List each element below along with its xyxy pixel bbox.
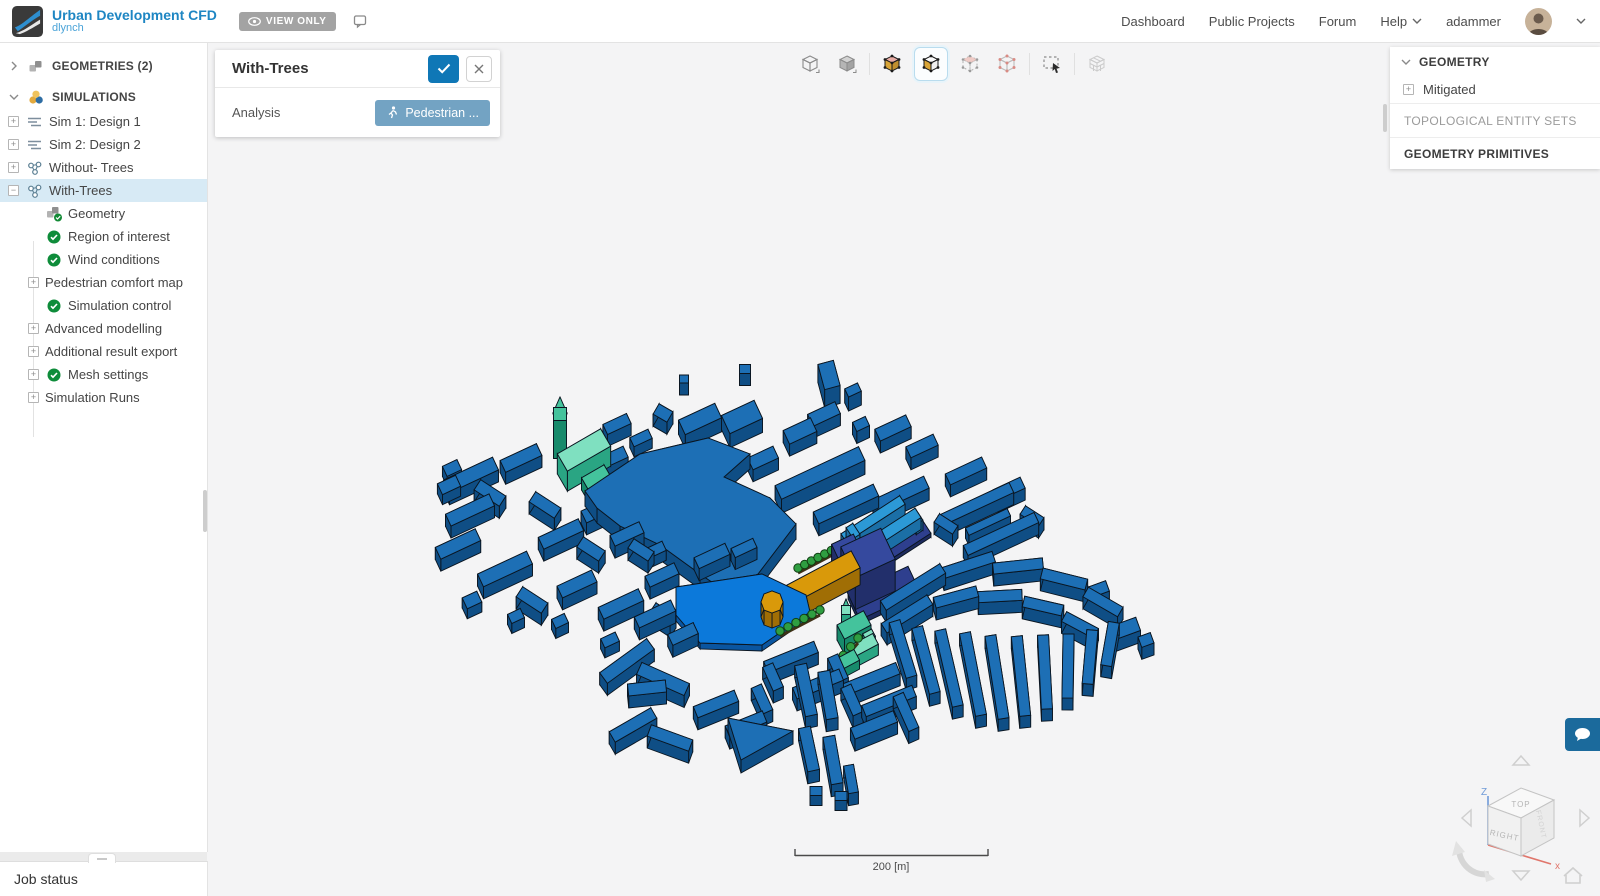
shaded-view-button[interactable] — [914, 47, 948, 81]
mesh-cube-icon — [1086, 53, 1108, 75]
navigation-cube[interactable]: Z x TOP RIGHT FRONT — [1452, 756, 1589, 883]
nav-forum[interactable]: Forum — [1319, 14, 1357, 29]
topological-entity-sets-label: TOPOLOGICAL ENTITY SETS — [1404, 114, 1577, 128]
scale-bar-label: 200 [m] — [873, 861, 910, 873]
sidebar-item-region-of-interest[interactable]: Region of interest — [0, 225, 207, 248]
geometry-section-row[interactable]: GEOMETRY — [1390, 47, 1600, 76]
wireframe-view-button[interactable] — [795, 49, 825, 79]
avatar-image — [1525, 8, 1552, 35]
expander-plus-icon[interactable]: + — [8, 139, 19, 150]
expander-minus-icon[interactable]: − — [8, 185, 19, 196]
expander-plus-icon[interactable]: + — [28, 369, 39, 380]
solid-view-button[interactable] — [832, 49, 862, 79]
sidebar-item-label: Pedestrian comfort map — [45, 275, 183, 290]
network-icon — [27, 184, 42, 198]
sidebar-item-label: Without- Trees — [49, 160, 134, 175]
vertex-cube-icon — [959, 53, 981, 75]
x-axis-label: x — [1555, 861, 1560, 872]
expander-plus-icon[interactable]: + — [28, 323, 39, 334]
shaded-edges-view-button[interactable] — [877, 49, 907, 79]
mesh-view-button[interactable] — [1082, 49, 1112, 79]
project-brand[interactable]: Urban Development CFD dlynch — [52, 8, 217, 34]
cube-top-label: TOP — [1511, 800, 1530, 809]
topological-entity-sets-row[interactable]: TOPOLOGICAL ENTITY SETS — [1390, 103, 1600, 137]
sidebar-item-label: Simulation Runs — [45, 390, 140, 405]
mitigated-row[interactable]: + Mitigated — [1390, 76, 1600, 103]
box-select-icon — [1041, 53, 1063, 75]
roll-arrow-head2 — [1484, 870, 1495, 882]
rotate-up-arrow[interactable] — [1513, 756, 1529, 765]
sidebar-item-without-trees[interactable]: + Without- Trees — [0, 156, 207, 179]
sidebar-item-label: GEOMETRIES (2) — [52, 59, 153, 73]
solid-cube-icon — [836, 53, 858, 75]
settings-panel-title: With-Trees — [232, 60, 428, 77]
home-view-icon[interactable] — [1564, 868, 1582, 883]
nav-help-menu[interactable]: Help — [1380, 14, 1422, 29]
chevron-right-icon[interactable] — [9, 61, 19, 71]
view-only-label: VIEW ONLY — [266, 16, 327, 27]
roll-arrow-head — [1452, 841, 1465, 856]
viewport-toolbar — [795, 47, 1112, 81]
header-nav: Dashboard Public Projects Forum Help ada… — [1121, 8, 1600, 35]
scene-tree-panel: GEOMETRY + Mitigated TOPOLOGICAL ENTITY … — [1390, 47, 1600, 169]
wireframe-cube-icon — [799, 53, 821, 75]
rotate-right-arrow[interactable] — [1580, 810, 1589, 826]
nav-help-label: Help — [1380, 14, 1407, 29]
sidebar-item-label: Sim 2: Design 2 — [49, 137, 141, 152]
project-title: Urban Development CFD — [52, 8, 217, 23]
scale-bar — [795, 849, 988, 856]
analysis-type-button[interactable]: Pedestrian ... — [375, 100, 490, 126]
sidebar-item-label: Sim 1: Design 1 — [49, 114, 141, 129]
chevron-down-icon[interactable] — [9, 92, 19, 102]
geometry-primitives-label: GEOMETRY PRIMITIVES — [1404, 147, 1549, 161]
check-circle-icon — [47, 368, 61, 382]
rotate-down-arrow[interactable] — [1513, 871, 1529, 880]
chevron-down-icon[interactable] — [1401, 57, 1411, 67]
sidebar-item-label: Additional result export — [45, 344, 177, 359]
nav-username[interactable]: adammer — [1446, 14, 1501, 29]
z-axis-label: Z — [1481, 787, 1487, 798]
job-status-panel[interactable]: Job status — [0, 861, 208, 896]
check-circle-icon — [47, 230, 61, 244]
geometry-icon — [46, 205, 63, 222]
expander-plus-icon[interactable]: + — [28, 392, 39, 403]
toolbar-divider — [1074, 53, 1075, 75]
simscale-logo[interactable] — [12, 6, 43, 37]
sidebar-item-with-trees[interactable]: − With-Trees — [0, 179, 207, 202]
sidebar-item-geometries[interactable]: GEOMETRIES (2) — [0, 52, 207, 79]
expander-plus-icon[interactable]: + — [1403, 84, 1414, 95]
city-model-scene: 200 [m] Z x — [207, 42, 1600, 895]
sidebar-item-additional-result-export[interactable]: + Additional result export — [0, 340, 207, 363]
expander-plus-icon[interactable]: + — [8, 162, 19, 173]
sidebar-scrollbar[interactable] — [203, 490, 207, 532]
sidebar-item-label: Wind conditions — [68, 252, 160, 267]
shaded-edges-cube-icon — [881, 53, 903, 75]
sidebar-item-advanced-modelling[interactable]: + Advanced modelling — [0, 317, 207, 340]
3d-viewport[interactable]: 200 [m] Z x — [207, 42, 1600, 895]
nav-dashboard[interactable]: Dashboard — [1121, 14, 1185, 29]
geometries-icon — [28, 58, 44, 74]
sidebar-item-pedestrian-comfort-map[interactable]: + Pedestrian comfort map — [0, 271, 207, 294]
eye-icon — [248, 17, 261, 26]
comment-icon[interactable] — [352, 13, 368, 29]
sidebar-item-label: Region of interest — [68, 229, 170, 244]
sidebar-item-simulation-control[interactable]: Simulation control — [0, 294, 207, 317]
primitive-selection-button[interactable] — [992, 49, 1022, 79]
expander-plus-icon[interactable]: + — [8, 116, 19, 127]
check-icon — [437, 63, 451, 74]
geometry-primitives-row[interactable]: GEOMETRY PRIMITIVES — [1390, 137, 1600, 169]
settings-panel-body: Analysis Pedestrian ... — [215, 88, 500, 137]
simulation-icon — [27, 116, 42, 128]
sidebar-item-wind-conditions[interactable]: Wind conditions — [0, 248, 207, 271]
right-panel-scrollbar[interactable] — [1383, 104, 1387, 132]
toolbar-divider — [869, 53, 870, 75]
close-icon — [474, 64, 484, 74]
sidebar-item-simulation-runs[interactable]: + Simulation Runs — [0, 386, 207, 409]
sidebar-item-sim2[interactable]: + Sim 2: Design 2 — [0, 133, 207, 156]
vertex-selection-button[interactable] — [955, 49, 985, 79]
confirm-button[interactable] — [428, 55, 459, 83]
analysis-field-label: Analysis — [232, 105, 375, 120]
with-trees-settings-panel: With-Trees Analysis Pedestrian ... — [215, 50, 500, 137]
simulation-icon — [27, 139, 42, 151]
simulations-icon — [28, 89, 44, 105]
check-circle-icon — [47, 253, 61, 267]
network-icon — [27, 161, 42, 175]
job-status-collapse-handle[interactable] — [88, 853, 116, 863]
shaded-cube-icon — [920, 53, 942, 75]
nav-public-projects[interactable]: Public Projects — [1209, 14, 1295, 29]
chat-bubble-icon — [1574, 727, 1591, 742]
toolbar-divider — [1029, 53, 1030, 75]
chat-button[interactable] — [1565, 718, 1600, 751]
sidebar-item-simulations[interactable]: SIMULATIONS — [0, 83, 207, 110]
sidebar-item-sim1[interactable]: + Sim 1: Design 1 — [0, 110, 207, 133]
primitive-cube-icon — [996, 53, 1018, 75]
avatar[interactable] — [1525, 8, 1552, 35]
project-owner: dlynch — [52, 23, 217, 35]
mitigated-label: Mitigated — [1423, 82, 1476, 97]
chevron-down-icon — [1412, 18, 1422, 24]
sidebar-item-geometry[interactable]: Geometry — [0, 202, 207, 225]
expander-plus-icon[interactable]: + — [28, 346, 39, 357]
box-select-button[interactable] — [1037, 49, 1067, 79]
analysis-type-label: Pedestrian ... — [405, 106, 479, 120]
sidebar-item-label: Simulation control — [68, 298, 171, 313]
simulation-tree-sidebar: GEOMETRIES (2) SIMULATIONS + Sim 1: Desi… — [0, 42, 208, 852]
rotate-left-arrow[interactable] — [1462, 810, 1471, 826]
city-buildings — [435, 360, 1154, 810]
check-circle-icon — [47, 299, 61, 313]
close-button[interactable] — [466, 56, 492, 82]
job-status-label: Job status — [14, 871, 78, 887]
expander-plus-icon[interactable]: + — [28, 277, 39, 288]
sidebar-item-mesh-settings[interactable]: + Mesh settings — [0, 363, 207, 386]
view-only-badge: VIEW ONLY — [239, 12, 336, 31]
sidebar-item-label: SIMULATIONS — [52, 90, 136, 104]
sidebar-item-label: Geometry — [68, 206, 125, 221]
app-header: Urban Development CFD dlynch VIEW ONLY D… — [0, 0, 1600, 43]
sidebar-item-label: Advanced modelling — [45, 321, 162, 336]
pedestrian-icon — [386, 106, 399, 119]
account-chevron-down-icon[interactable] — [1576, 18, 1586, 24]
geometry-section-label: GEOMETRY — [1419, 55, 1490, 69]
settings-panel-header: With-Trees — [215, 50, 500, 88]
sidebar-item-label: With-Trees — [49, 183, 112, 198]
sidebar-item-label: Mesh settings — [68, 367, 148, 382]
